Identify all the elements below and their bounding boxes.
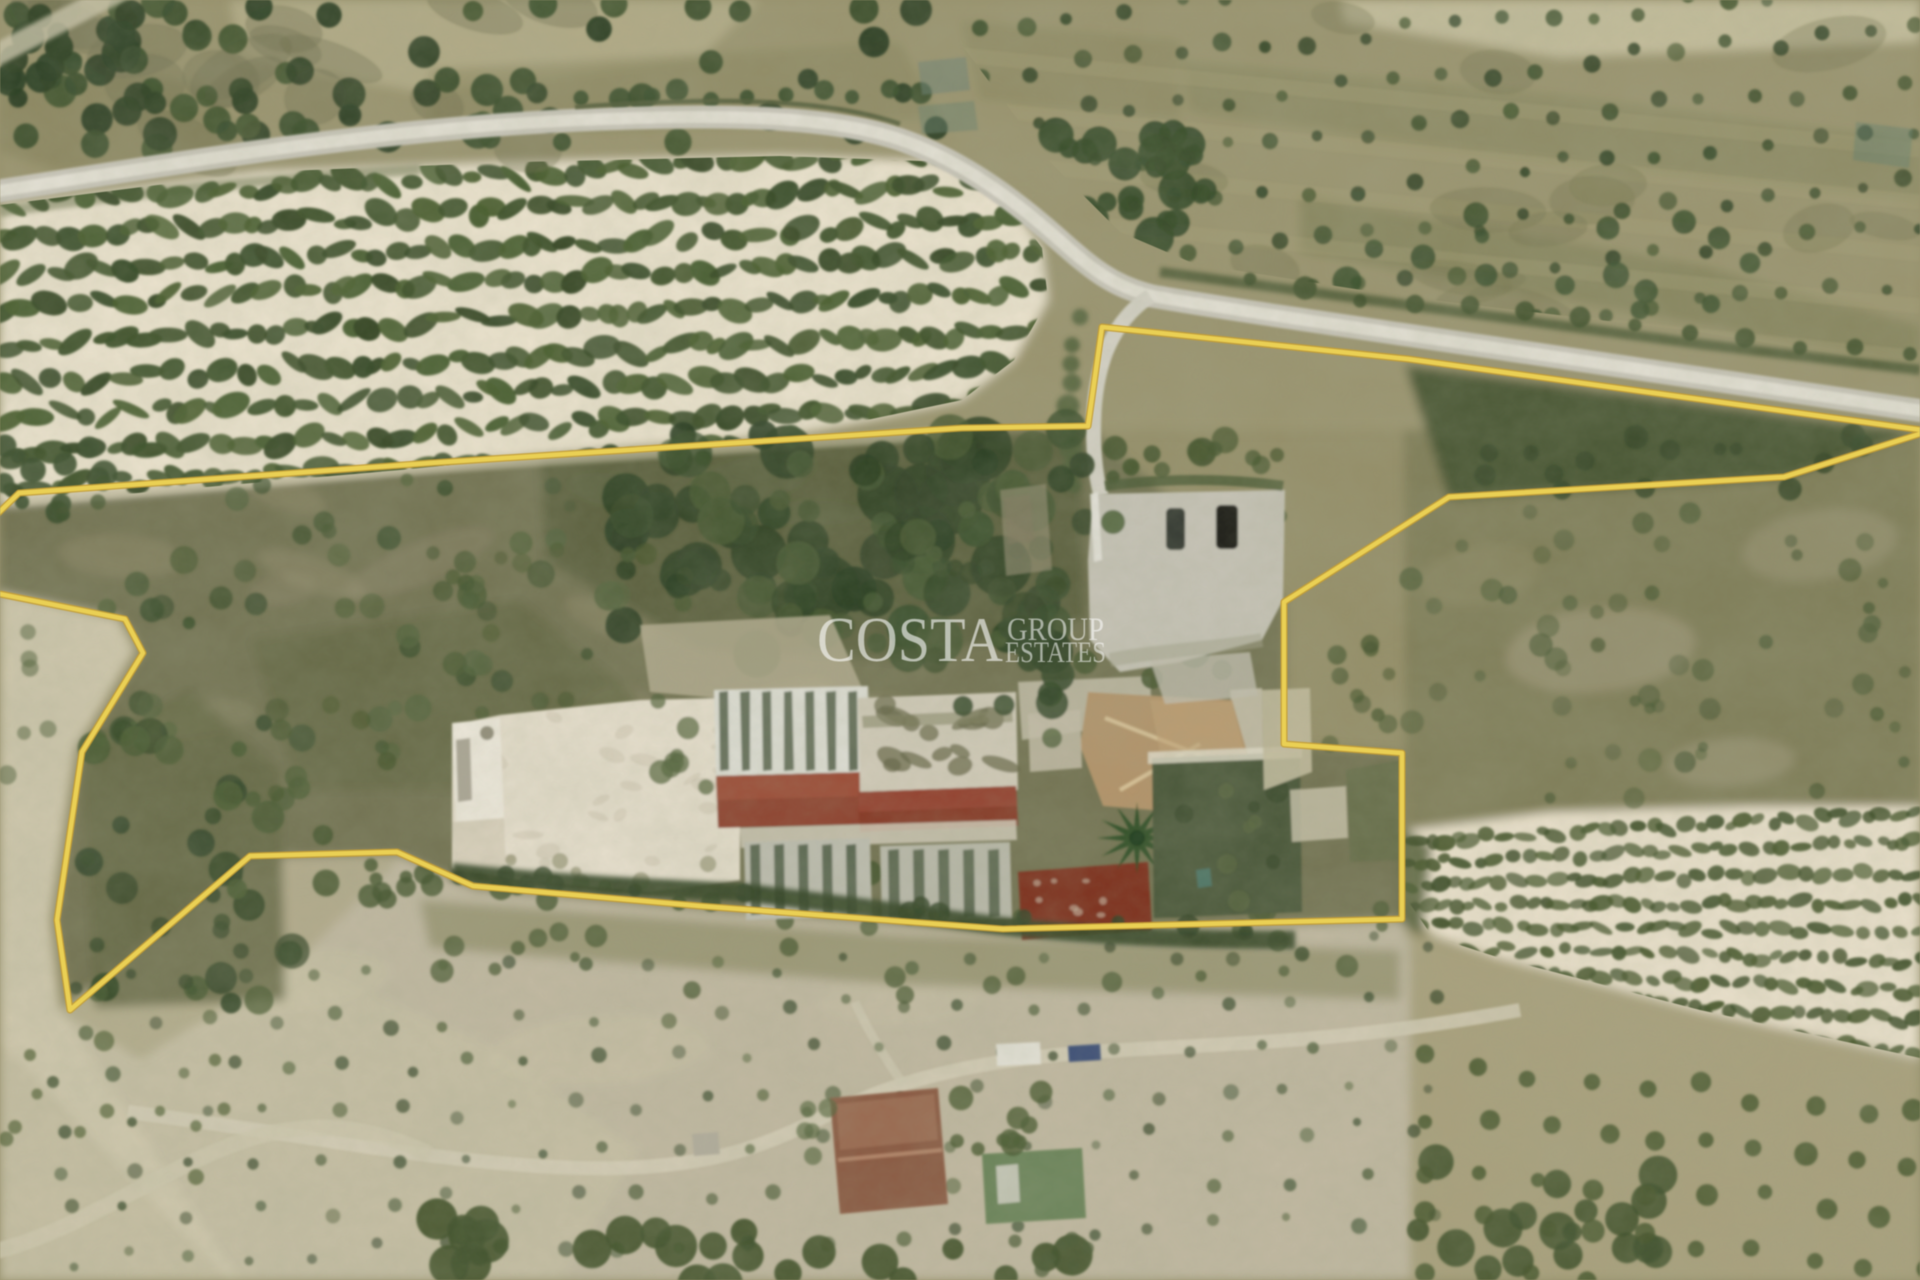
svg-text:ESTATES: ESTATES bbox=[1005, 636, 1106, 669]
svg-text:COSTA: COSTA bbox=[817, 605, 1003, 675]
